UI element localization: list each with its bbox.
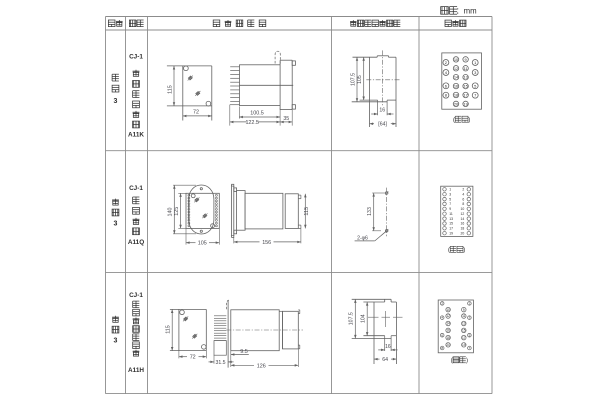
svg-text:115: 115	[166, 325, 172, 334]
svg-text:12: 12	[454, 66, 458, 71]
svg-text:5: 5	[449, 197, 451, 201]
svg-text:4: 4	[462, 192, 464, 196]
svg-text:72: 72	[193, 110, 199, 116]
svg-text:17: 17	[463, 93, 467, 98]
svg-text:): )	[466, 358, 468, 364]
svg-text:3: 3	[449, 192, 451, 196]
svg-text:107.5: 107.5	[349, 312, 355, 325]
svg-text:11: 11	[449, 212, 453, 216]
svg-text:72: 72	[190, 355, 196, 361]
svg-text:15: 15	[463, 84, 467, 89]
svg-text:A11Q: A11Q	[128, 239, 144, 246]
svg-text:16: 16	[385, 344, 391, 350]
svg-text:115: 115	[167, 85, 173, 94]
svg-text:16: 16	[461, 222, 465, 226]
svg-text:17: 17	[449, 227, 453, 231]
svg-text:15: 15	[462, 329, 466, 333]
svg-text:18: 18	[461, 227, 465, 231]
svg-text:1: 1	[449, 188, 451, 192]
svg-text:18: 18	[454, 93, 458, 98]
svg-text:2: 2	[462, 188, 464, 192]
svg-text:19: 19	[449, 231, 453, 235]
svg-text:35: 35	[283, 116, 289, 122]
svg-text:126: 126	[257, 363, 266, 369]
svg-text:20: 20	[446, 343, 450, 347]
svg-text:19: 19	[462, 343, 466, 347]
svg-text:): )	[463, 248, 465, 254]
svg-text:156: 156	[262, 240, 271, 246]
svg-text:16: 16	[454, 84, 458, 89]
svg-text:11: 11	[464, 66, 468, 71]
svg-text:14: 14	[461, 217, 465, 221]
svg-text:CJ-1: CJ-1	[129, 292, 143, 299]
svg-text:6: 6	[462, 197, 464, 201]
svg-text:): )	[468, 117, 470, 123]
svg-text:12: 12	[461, 212, 465, 216]
svg-text:7: 7	[449, 202, 451, 206]
svg-text:8: 8	[462, 202, 464, 206]
svg-text:13: 13	[449, 217, 453, 221]
svg-text:10: 10	[446, 308, 450, 312]
svg-text:(: (	[453, 117, 455, 123]
svg-text:19: 19	[463, 101, 467, 106]
svg-text:3: 3	[114, 338, 118, 345]
svg-text:(: (	[451, 358, 453, 364]
svg-text:13: 13	[462, 322, 466, 326]
svg-text:107.5: 107.5	[350, 73, 356, 86]
svg-text:[64]: [64]	[378, 122, 387, 128]
svg-text:9: 9	[449, 207, 451, 211]
svg-text:125: 125	[174, 207, 180, 216]
svg-text:10: 10	[461, 207, 465, 211]
svg-text:13: 13	[463, 75, 467, 80]
svg-text:11: 11	[462, 314, 466, 318]
svg-text:105: 105	[357, 75, 363, 84]
svg-text:105: 105	[198, 241, 207, 247]
svg-text:3: 3	[114, 98, 118, 105]
svg-text:9: 9	[465, 57, 467, 62]
svg-text:16: 16	[379, 108, 385, 114]
svg-text:133: 133	[367, 207, 373, 216]
svg-text:(: (	[448, 248, 450, 254]
svg-text:2-φ6: 2-φ6	[357, 235, 368, 241]
svg-text:A11H: A11H	[128, 367, 144, 374]
svg-text:CJ-1: CJ-1	[129, 54, 143, 61]
svg-text:15: 15	[449, 222, 453, 226]
svg-text:CJ-1: CJ-1	[129, 185, 143, 192]
svg-text:17: 17	[462, 336, 466, 340]
svg-text:A11K: A11K	[128, 132, 144, 139]
svg-text:16: 16	[446, 329, 450, 333]
svg-text:：mm: ：mm	[456, 7, 477, 16]
svg-text:31.5: 31.5	[215, 360, 225, 366]
svg-text:115: 115	[304, 207, 310, 216]
svg-text:3: 3	[114, 220, 118, 227]
svg-text:12: 12	[446, 314, 450, 318]
svg-text:122.5: 122.5	[245, 120, 259, 126]
svg-text:104: 104	[361, 314, 367, 323]
svg-text:9: 9	[463, 308, 465, 312]
svg-text:18: 18	[446, 336, 450, 340]
svg-text:9.5: 9.5	[240, 349, 248, 355]
svg-text:64: 64	[382, 357, 388, 363]
svg-text:100.5: 100.5	[250, 111, 264, 117]
svg-text:14: 14	[446, 322, 450, 326]
svg-text:20: 20	[461, 231, 465, 235]
svg-text:140: 140	[168, 208, 174, 217]
